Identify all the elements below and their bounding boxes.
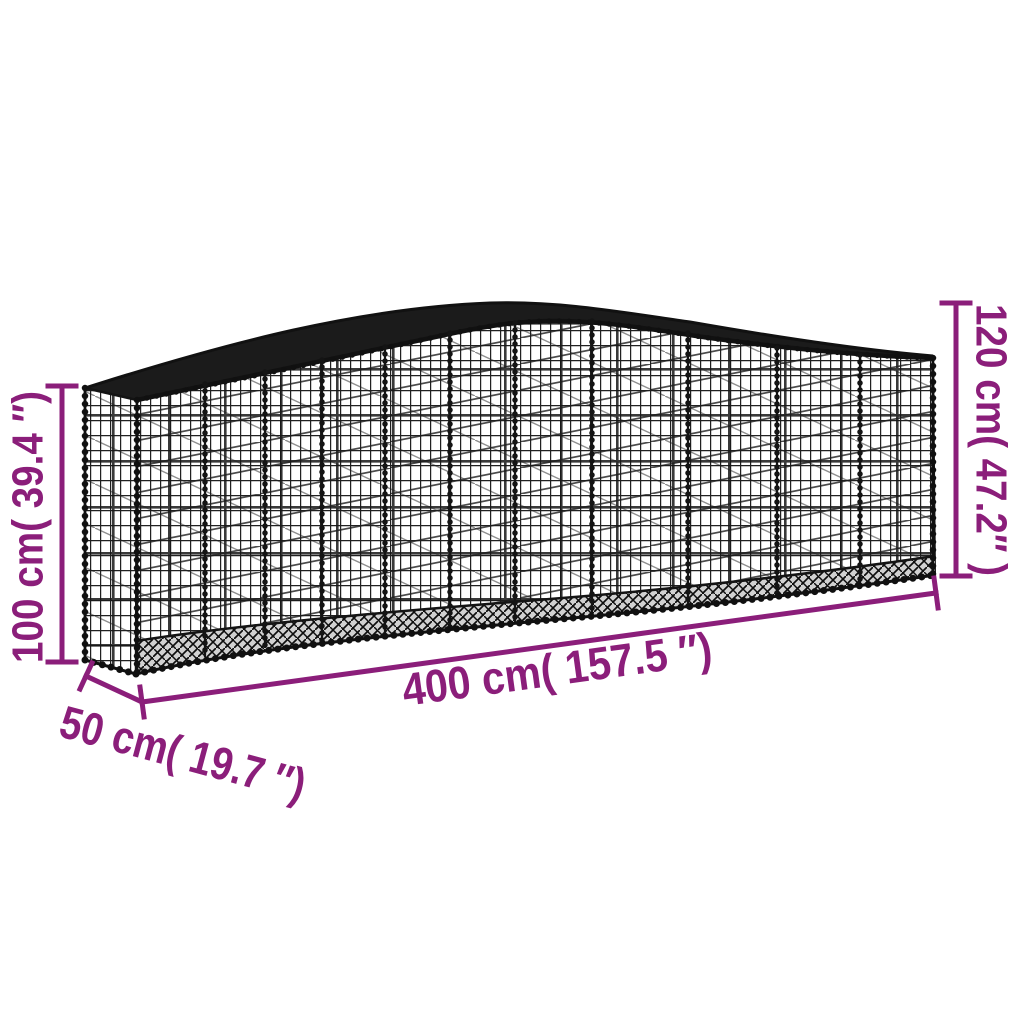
dim-label-depth: 50 cm( 19.7 ″) <box>55 695 312 810</box>
dim-label-total-height: 120 cm( 47.2″ ) <box>967 304 1016 576</box>
dim-label-length: 400 cm( 157.5 ″) <box>399 622 715 716</box>
dim-label-side-height: 100 cm( 39.4 ″) <box>4 391 53 663</box>
dim-tick <box>934 578 938 608</box>
gabion-basket-diagram: 100 cm( 39.4 ″) 120 cm( 47.2″ ) 400 cm( … <box>0 0 1024 1024</box>
product-dimension-image: 100 cm( 39.4 ″) 120 cm( 47.2″ ) 400 cm( … <box>0 0 1024 1024</box>
gabion-basket-illustration <box>85 303 935 674</box>
dim-line-depth <box>86 676 142 702</box>
basket-left-end-face <box>85 388 137 674</box>
